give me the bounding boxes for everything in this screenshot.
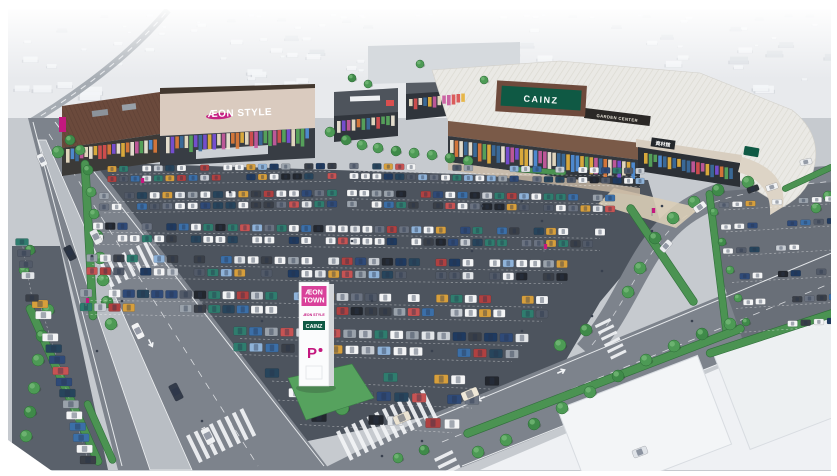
- car-cabin: [192, 176, 195, 180]
- car-cabin: [145, 177, 148, 181]
- car-cabin: [386, 272, 390, 278]
- pylon-parking-p: P: [307, 345, 317, 362]
- car-cabin: [378, 227, 381, 232]
- car-cabin: [180, 176, 183, 180]
- car-cabin: [547, 261, 551, 267]
- city-block: [15, 85, 30, 91]
- car-cabin: [145, 236, 148, 241]
- storefront-panel: [428, 97, 432, 107]
- tree-highlight: [502, 435, 507, 440]
- storefront-panel: [208, 134, 212, 149]
- car-cabin: [462, 350, 466, 357]
- car-cabin: [180, 166, 183, 170]
- car-cabin: [394, 332, 398, 339]
- car-cabin: [278, 258, 282, 264]
- car-cabin: [273, 165, 276, 169]
- car-cabin: [562, 241, 565, 246]
- car-cabin: [506, 261, 510, 267]
- car-cabin: [255, 307, 259, 313]
- tree: [556, 402, 568, 414]
- person: [381, 455, 384, 458]
- car-cabin: [194, 225, 197, 230]
- car-cabin: [270, 345, 274, 352]
- car-cabin: [366, 239, 369, 244]
- storefront-panel: [649, 154, 653, 167]
- person: [691, 320, 694, 323]
- car-cabin: [345, 259, 349, 265]
- car-cabin: [540, 297, 544, 303]
- storefront-panel: [501, 146, 505, 162]
- car-cabin: [24, 262, 28, 267]
- tree-highlight: [365, 81, 369, 85]
- car-cabin: [781, 272, 784, 276]
- person: [91, 255, 94, 258]
- tree: [416, 60, 424, 68]
- tree-highlight: [358, 141, 363, 146]
- car-cabin: [439, 260, 443, 266]
- car-cabin: [48, 334, 53, 340]
- car-cabin: [383, 295, 387, 301]
- car-cabin: [268, 226, 271, 231]
- car-cabin: [54, 357, 59, 363]
- tree: [668, 340, 680, 352]
- car-cabin: [127, 291, 131, 297]
- car-cabin: [473, 334, 477, 341]
- car-cabin: [570, 178, 573, 182]
- person: [121, 300, 124, 303]
- car-cabin: [379, 331, 383, 338]
- car-cabin: [726, 249, 729, 253]
- car-cabin: [51, 346, 56, 352]
- person: [261, 320, 264, 323]
- car-cabin: [141, 291, 145, 297]
- storefront-panel: [254, 131, 258, 148]
- car-cabin: [216, 203, 219, 208]
- tree: [696, 328, 708, 340]
- pylon-town-text: TOWN: [303, 298, 324, 305]
- car-cabin: [535, 194, 538, 199]
- tree: [373, 143, 383, 153]
- car-cabin: [198, 306, 202, 312]
- car-cabin: [513, 228, 516, 233]
- car-cabin: [241, 292, 245, 298]
- car-cabin: [140, 193, 143, 198]
- storefront-panel: [296, 129, 300, 144]
- tree-highlight: [481, 77, 485, 81]
- person: [371, 300, 374, 303]
- car-cabin: [157, 176, 160, 180]
- car-cabin: [593, 168, 596, 172]
- car-cabin: [493, 273, 497, 279]
- storefront-panel: [497, 146, 501, 163]
- tree-highlight: [726, 319, 731, 324]
- car-cabin: [182, 225, 185, 230]
- car-cabin: [520, 335, 524, 342]
- person: [521, 330, 524, 333]
- car-cabin: [212, 292, 216, 298]
- car-cabin: [524, 167, 527, 171]
- storefront-panel: [107, 145, 111, 155]
- car-cabin: [467, 166, 470, 170]
- car-cabin: [347, 330, 351, 337]
- car-cabin: [817, 220, 820, 224]
- storefront-panel: [668, 157, 672, 169]
- car-cabin: [110, 167, 113, 171]
- storefront-panel: [357, 119, 361, 127]
- storefront-panel: [706, 164, 710, 175]
- car-cabin: [130, 256, 134, 262]
- storefront-panel: [419, 98, 423, 105]
- storefront-panel: [672, 158, 676, 168]
- car-cabin: [267, 203, 270, 208]
- tree: [584, 386, 596, 398]
- car-cabin: [397, 309, 401, 315]
- car-cabin: [153, 204, 156, 209]
- car-cabin: [157, 256, 161, 262]
- tree-highlight: [349, 75, 353, 79]
- car-cabin: [375, 164, 378, 168]
- car-cabin: [820, 296, 823, 300]
- tree: [364, 80, 372, 88]
- car-cabin: [153, 193, 156, 198]
- car-cabin: [68, 401, 73, 407]
- car-cabin: [280, 202, 283, 207]
- car-cabin: [558, 168, 561, 172]
- car-cabin: [549, 241, 552, 246]
- car-cabin: [381, 393, 386, 400]
- car-cabin: [483, 310, 487, 316]
- car-cabin: [455, 176, 458, 180]
- pylon-aeon-style-text: ÆON STYLE: [303, 313, 325, 317]
- car-cabin: [586, 241, 589, 246]
- storefront-panel: [520, 149, 524, 165]
- car-cabin: [441, 333, 445, 340]
- car-cabin: [285, 329, 289, 336]
- car-cabin: [439, 273, 443, 279]
- car-cabin: [286, 345, 290, 352]
- car-cabin: [284, 175, 287, 179]
- pylon-parking-dot: [319, 348, 323, 352]
- car-cabin: [191, 204, 194, 209]
- tree: [724, 318, 736, 330]
- aeon-style-sign: ÆON STYLE: [207, 107, 272, 120]
- storefront-panel: [715, 166, 719, 175]
- car-cabin: [815, 198, 818, 202]
- storefront-panel: [153, 140, 157, 153]
- car-cabin: [242, 203, 245, 208]
- car-cabin: [128, 193, 131, 198]
- car-cabin: [170, 236, 173, 241]
- car-cabin: [596, 196, 599, 201]
- car-cabin: [82, 446, 87, 452]
- car-cabin: [751, 224, 754, 228]
- storefront-panel: [89, 147, 93, 159]
- car-cabin: [453, 273, 457, 279]
- tree-highlight: [624, 287, 629, 292]
- car-cabin: [305, 202, 308, 207]
- car-cabin: [261, 175, 264, 179]
- tree: [500, 434, 512, 446]
- tree-highlight: [392, 147, 397, 152]
- car-cabin: [366, 227, 369, 232]
- tree-highlight: [824, 192, 829, 197]
- storefront-panel: [250, 132, 254, 146]
- car-cabin: [616, 179, 619, 183]
- car-cabin: [436, 203, 439, 208]
- tree-highlight: [614, 371, 619, 376]
- storefront-panel: [729, 168, 733, 179]
- car-cabin: [158, 236, 161, 241]
- storefront-panel: [450, 140, 454, 153]
- tree-highlight: [744, 177, 749, 182]
- car-cabin: [204, 203, 207, 208]
- car-cabin: [415, 239, 418, 244]
- car-cabin: [520, 261, 524, 267]
- car-cabin: [157, 269, 161, 275]
- car-cabin: [738, 225, 741, 229]
- tree: [718, 238, 726, 246]
- car-cabin: [547, 177, 550, 181]
- car-cabin: [488, 240, 491, 245]
- car-cabin: [292, 202, 295, 207]
- car-cabin: [65, 390, 70, 396]
- car-cabin: [41, 312, 46, 318]
- car-cabin: [292, 191, 295, 196]
- car-cabin: [817, 320, 820, 324]
- car-cabin: [522, 205, 525, 210]
- car-cabin: [127, 305, 131, 311]
- car-cabin: [399, 203, 402, 208]
- car-cabin: [473, 204, 476, 209]
- car-cabin: [581, 178, 584, 182]
- car-cabin: [109, 224, 112, 229]
- car-cabin: [547, 195, 550, 200]
- car-cabin: [296, 174, 299, 178]
- car-cabin: [121, 236, 124, 241]
- car-cabin: [122, 167, 125, 171]
- car-cabin: [466, 260, 470, 266]
- car-cabin: [593, 178, 596, 182]
- car-cabin: [198, 292, 202, 298]
- tree-highlight: [34, 355, 39, 360]
- car-cabin: [399, 192, 402, 197]
- car-cabin: [410, 332, 414, 339]
- car-cabin: [506, 274, 510, 280]
- car-cabin: [178, 204, 181, 209]
- car-cabin: [476, 240, 479, 245]
- car-cabin: [412, 295, 416, 301]
- car-cabin: [369, 294, 373, 300]
- storefront-panel: [268, 131, 272, 146]
- tree-highlight: [670, 341, 675, 346]
- storefront-panel: [557, 153, 561, 168]
- storefront-panel: [455, 141, 459, 157]
- car-cabin: [211, 270, 215, 276]
- tree: [89, 209, 99, 219]
- tree: [622, 286, 634, 298]
- storefront-panel: [644, 153, 648, 164]
- car-cabin: [414, 348, 418, 355]
- tree-highlight: [342, 136, 347, 141]
- tree-highlight: [711, 209, 715, 213]
- car-cabin: [638, 179, 641, 183]
- car-cabin: [749, 202, 752, 206]
- car-cabin: [329, 226, 332, 231]
- tree: [580, 324, 592, 336]
- car-cabin: [238, 270, 242, 276]
- car-cabin: [85, 457, 90, 463]
- car-cabin: [330, 174, 333, 178]
- car-cabin: [743, 274, 746, 278]
- car-cabin: [238, 344, 242, 351]
- car-cabin: [596, 207, 599, 212]
- person: [541, 220, 544, 223]
- car-cabin: [500, 228, 503, 233]
- car-cabin: [808, 297, 811, 301]
- city-block: [58, 82, 73, 88]
- tree: [472, 446, 484, 458]
- car-cabin: [170, 224, 173, 229]
- car-cabin: [537, 229, 540, 234]
- car-cabin: [469, 310, 473, 316]
- car-cabin: [796, 297, 799, 301]
- tree-highlight: [76, 146, 81, 151]
- tree-highlight: [394, 454, 399, 459]
- tree-highlight: [558, 403, 563, 408]
- car-cabin: [498, 194, 501, 199]
- storefront-panel: [506, 147, 510, 164]
- car-cabin: [254, 344, 258, 351]
- tree-highlight: [446, 154, 451, 159]
- car-cabin: [61, 379, 66, 385]
- tree: [341, 135, 351, 145]
- car-cabin: [820, 270, 823, 274]
- person: [521, 200, 524, 203]
- tree: [742, 318, 750, 326]
- car-cabin: [75, 424, 80, 430]
- tree-highlight: [374, 144, 379, 149]
- car-cabin: [522, 194, 525, 199]
- car-cabin: [184, 306, 188, 312]
- storefront-panel: [720, 166, 724, 177]
- car-cabin: [427, 227, 430, 232]
- tree-highlight: [642, 355, 647, 360]
- car-cabin: [574, 241, 577, 246]
- tree-highlight: [326, 128, 331, 133]
- car-cabin: [157, 166, 160, 170]
- tree: [480, 76, 488, 84]
- storefront-panel: [459, 141, 463, 157]
- car-cabin: [98, 304, 102, 310]
- tree-highlight: [727, 267, 731, 271]
- car-cabin: [604, 168, 607, 172]
- car-cabin: [456, 376, 461, 383]
- car-cabin: [500, 240, 503, 245]
- tree-highlight: [66, 136, 71, 141]
- car-cabin: [363, 191, 366, 196]
- person: [471, 250, 474, 253]
- car-cabin: [478, 176, 481, 180]
- tree-highlight: [743, 319, 747, 323]
- car-cabin: [352, 164, 355, 168]
- tree: [612, 370, 624, 382]
- storefront-panel: [166, 137, 170, 153]
- storefront-panel: [117, 144, 121, 154]
- car-cabin: [229, 203, 232, 208]
- car-cabin: [133, 236, 136, 241]
- storefront-panel: [663, 156, 667, 167]
- storefront-panel: [381, 117, 385, 125]
- car-cabin: [386, 259, 390, 265]
- car-cabin: [184, 292, 188, 298]
- car-cabin: [402, 227, 405, 232]
- car-cabin: [533, 261, 537, 267]
- car-cabin: [498, 205, 501, 210]
- banner-flag: [86, 298, 89, 303]
- storefront-panel: [231, 133, 235, 144]
- storefront-panel: [203, 135, 207, 149]
- car-cabin: [269, 307, 273, 313]
- car-cabin: [307, 164, 310, 168]
- storefront-panel: [538, 151, 542, 163]
- tree: [20, 430, 32, 442]
- car-cabin: [449, 204, 452, 209]
- tree-highlight: [22, 431, 27, 436]
- car-cabin: [775, 200, 778, 204]
- car-cabin: [168, 176, 171, 180]
- tree: [75, 145, 85, 155]
- car-cabin: [375, 202, 378, 207]
- tree: [393, 453, 403, 463]
- storefront-panel: [391, 116, 395, 126]
- car-cabin: [616, 169, 619, 173]
- car-cabin: [144, 269, 148, 275]
- car-cabin: [461, 193, 464, 198]
- car-cabin: [455, 166, 458, 170]
- storefront-panel: [189, 136, 193, 153]
- car-cabin: [355, 294, 359, 300]
- storefront-panel: [135, 142, 139, 154]
- car-cabin: [399, 272, 403, 278]
- person: [351, 240, 354, 243]
- tree-highlight: [87, 188, 92, 193]
- storefront-panel: [682, 160, 686, 171]
- tree-highlight: [30, 383, 35, 388]
- car-cabin: [267, 192, 270, 197]
- person: [661, 205, 664, 208]
- storefront-panel: [701, 163, 705, 171]
- car-cabin: [461, 204, 464, 209]
- car-cabin: [454, 296, 458, 302]
- car-cabin: [476, 228, 479, 233]
- car-cabin: [439, 240, 442, 245]
- storefront-panel: [112, 144, 116, 154]
- car-cabin: [134, 177, 137, 181]
- tree: [649, 232, 661, 244]
- car-cabin: [171, 256, 175, 262]
- car-cabin: [112, 290, 116, 296]
- storefront-panel: [457, 94, 461, 103]
- storefront-panel: [483, 144, 487, 160]
- car-cabin: [215, 176, 218, 180]
- tree: [409, 148, 419, 158]
- car-cabin: [382, 347, 386, 354]
- tree: [734, 294, 742, 302]
- person: [421, 440, 424, 443]
- storefront-panel: [725, 167, 729, 179]
- tree-highlight: [54, 147, 59, 152]
- storefront-panel: [376, 117, 380, 129]
